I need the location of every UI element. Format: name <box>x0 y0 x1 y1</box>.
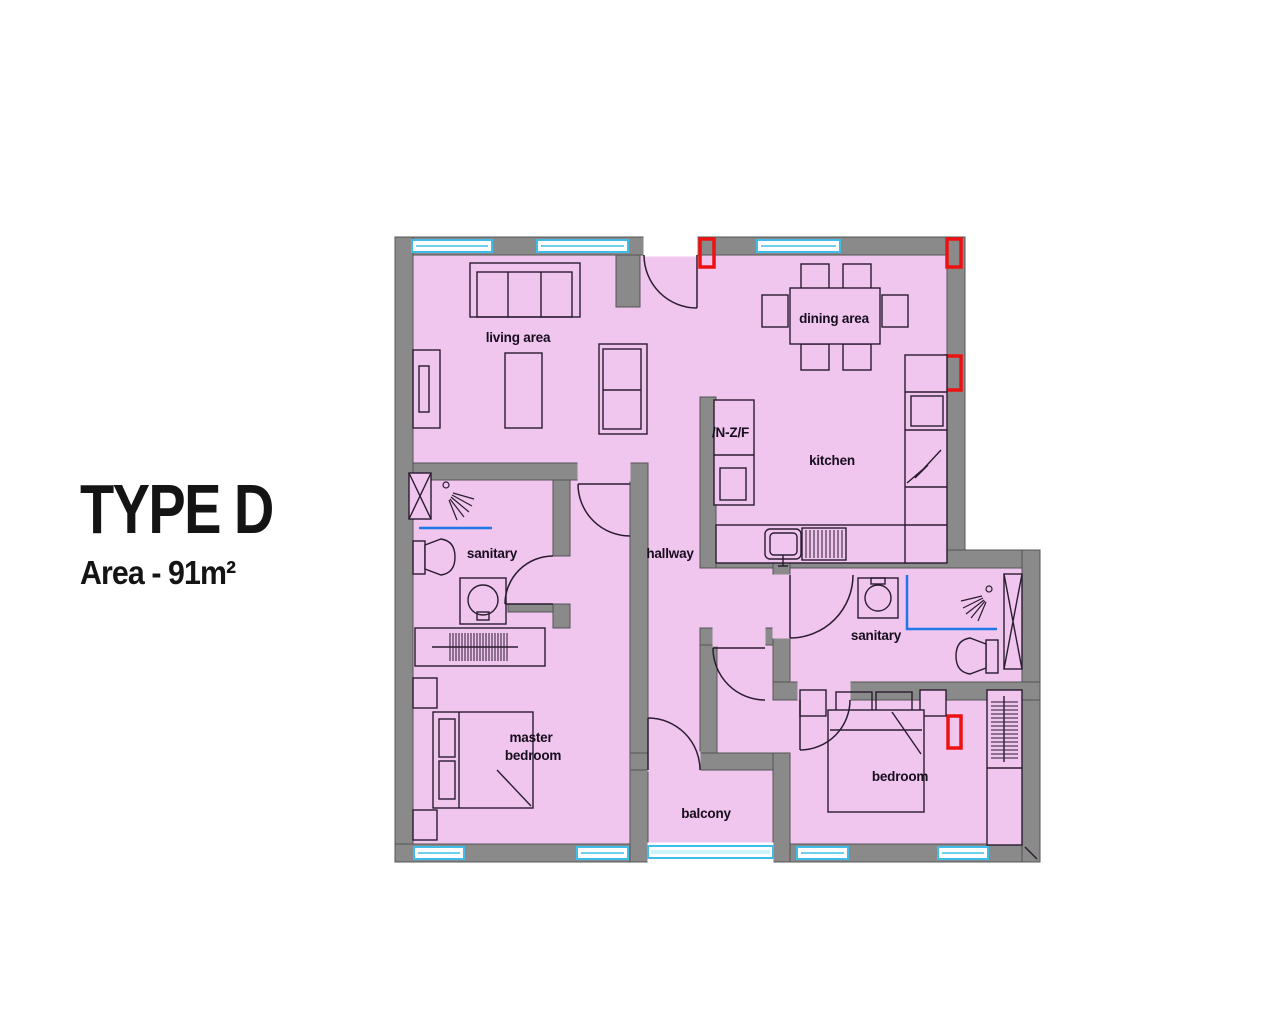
wardrobe <box>987 690 1022 845</box>
shaft-label: /N-Z/F <box>712 425 749 440</box>
sofa <box>470 263 580 317</box>
door-opening <box>578 462 630 481</box>
dining-chair <box>882 295 908 327</box>
wall-segment <box>1022 550 1040 862</box>
vent-shaft-icon <box>409 473 431 519</box>
dining-chair <box>762 295 788 327</box>
window <box>414 847 464 859</box>
room-label-dining-area: dining area <box>799 311 870 326</box>
window <box>537 240 628 252</box>
wall-segment <box>395 237 413 862</box>
vent-shaft-icon <box>1004 574 1022 669</box>
door-opening <box>773 575 790 638</box>
door-opening <box>713 627 765 646</box>
wall-segment <box>630 463 648 862</box>
wardrobe <box>415 628 545 666</box>
balcony-railing <box>648 846 773 858</box>
wall-segment <box>947 237 965 568</box>
nightstand <box>413 678 437 708</box>
nightstand <box>800 690 826 716</box>
room-label-sanitary-left: sanitary <box>467 546 518 561</box>
window <box>757 240 840 252</box>
room-label-master-bedroom-line1: master <box>509 730 553 745</box>
kitchen-counter-bottom <box>716 525 908 566</box>
washing-machine-icon <box>460 578 506 624</box>
room-label-hallway: hallway <box>646 546 694 561</box>
tv-unit <box>413 350 440 428</box>
window <box>412 240 492 252</box>
coffee-table <box>505 353 542 428</box>
wall-segment <box>553 480 570 556</box>
nightstand <box>413 810 437 840</box>
washing-machine-icon <box>858 578 898 618</box>
wall-segment <box>616 255 640 307</box>
dining-chair <box>801 264 829 290</box>
loveseat <box>599 344 647 434</box>
entrance-opening <box>644 236 697 256</box>
kitchen-counter-right <box>905 355 947 563</box>
toilet-icon <box>956 638 998 674</box>
door-opening <box>648 752 700 771</box>
wall-segment <box>553 604 570 628</box>
wall-segment <box>700 645 717 770</box>
floor-plan-page: TYPE D Area - 91m² <box>0 0 1280 1024</box>
room-label-balcony: balcony <box>681 806 731 821</box>
kitchen-counter-left <box>714 400 754 505</box>
room-label-master-bedroom-line2: bedroom <box>505 748 562 763</box>
bed <box>828 692 924 812</box>
dining-chair <box>801 344 829 370</box>
toilet-icon <box>413 539 455 575</box>
window <box>577 847 628 859</box>
window <box>797 847 848 859</box>
window <box>938 847 988 859</box>
room-label-living-area: living area <box>486 330 551 345</box>
floor-plan-drawing: living area dining area kitchen hallway … <box>0 0 1280 1024</box>
wall-segment <box>773 753 790 862</box>
dining-chair <box>843 344 871 370</box>
room-label-kitchen: kitchen <box>809 453 855 468</box>
dining-chair <box>843 264 871 290</box>
wall-segment <box>508 604 555 612</box>
room-label-sanitary-right: sanitary <box>851 628 902 643</box>
room-label-bedroom: bedroom <box>872 769 929 784</box>
